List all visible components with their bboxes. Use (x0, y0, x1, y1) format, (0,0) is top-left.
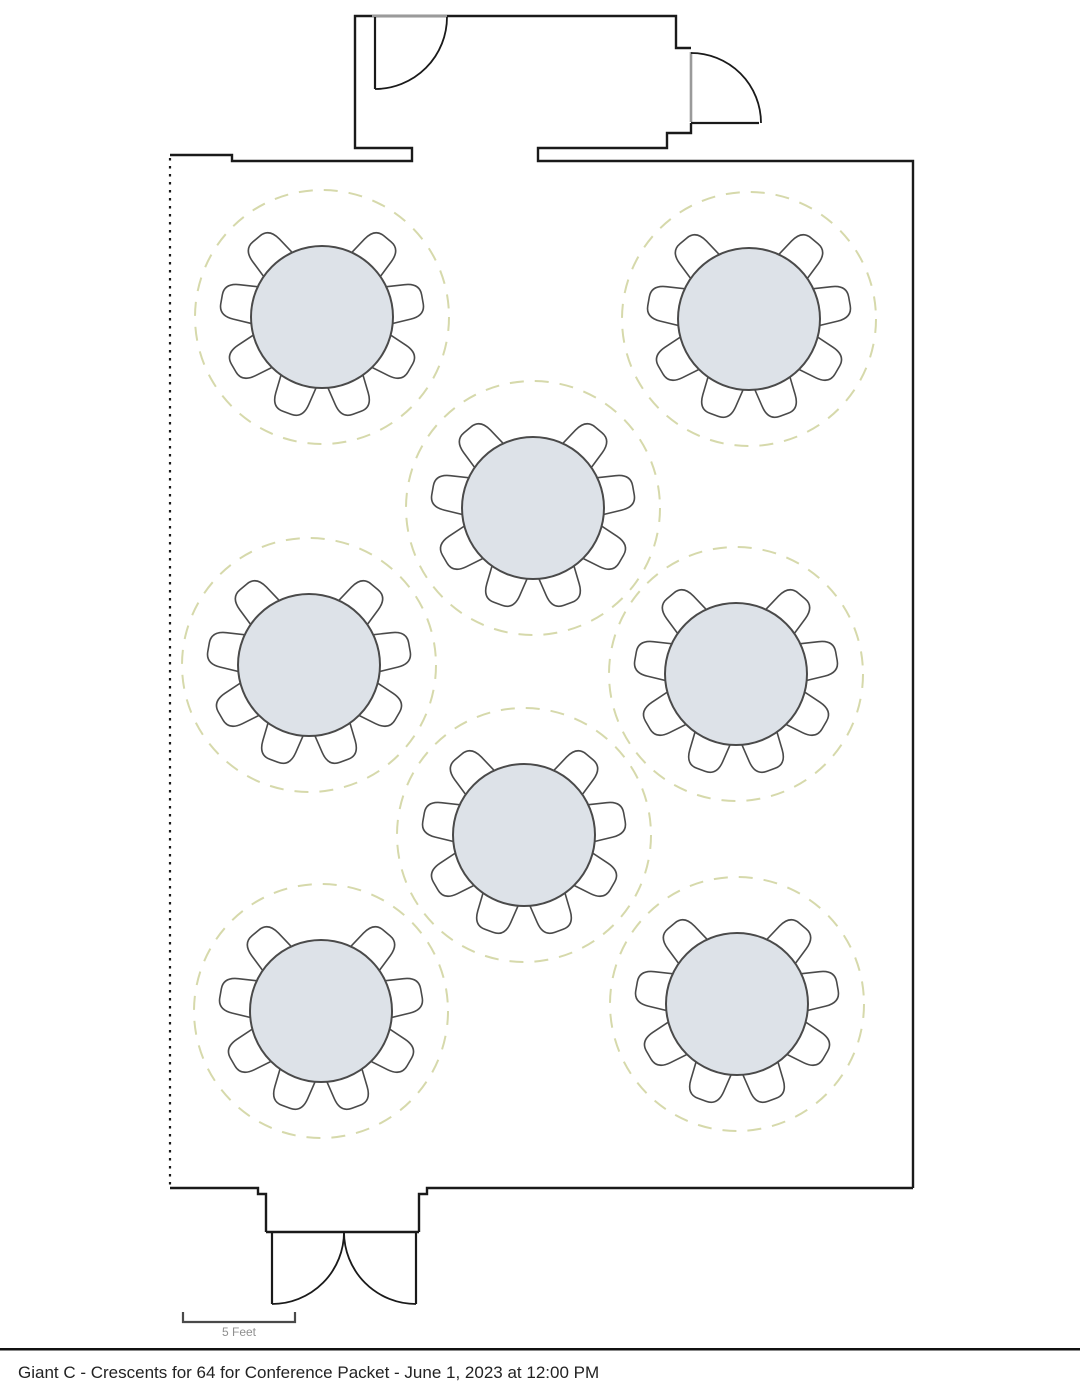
round-table (250, 940, 392, 1082)
wall-top-left-and-vestibule (170, 16, 691, 161)
banquet-table-group (194, 884, 448, 1138)
wall-bottom-left (170, 1188, 266, 1232)
scale-label: 5 Feet (222, 1325, 257, 1339)
caption-rule (0, 1348, 1080, 1351)
banquet-table-group (195, 190, 449, 444)
main-entry-right-swing-arc (344, 1232, 416, 1304)
right-door-swing-arc (691, 53, 761, 123)
floor-plan: 5 Feet Giant C - Crescents for 64 for Co… (0, 0, 1080, 1397)
round-table (453, 764, 595, 906)
round-table (251, 246, 393, 388)
banquet-table-group (622, 192, 876, 446)
banquet-table-group (182, 538, 436, 792)
banquet-table-group (406, 381, 660, 635)
round-table (678, 248, 820, 390)
scale-bar: 5 Feet (183, 1312, 295, 1339)
floor-plan-page: 5 Feet Giant C - Crescents for 64 for Co… (0, 0, 1080, 1397)
tables-layer (182, 190, 876, 1138)
wall-bottom-right (419, 1188, 913, 1232)
vestibule-door-swing-arc (375, 17, 447, 89)
scale-bracket (183, 1312, 295, 1322)
round-table (462, 437, 604, 579)
main-entry-left-swing-arc (272, 1232, 344, 1304)
caption-bar: Giant C - Crescents for 64 for Conferenc… (0, 1348, 1080, 1382)
caption-text: Giant C - Crescents for 64 for Conferenc… (18, 1363, 599, 1382)
round-table (665, 603, 807, 745)
round-table (238, 594, 380, 736)
banquet-table-group (609, 547, 863, 801)
round-table (666, 933, 808, 1075)
banquet-table-group (610, 877, 864, 1131)
banquet-table-group (397, 708, 651, 962)
